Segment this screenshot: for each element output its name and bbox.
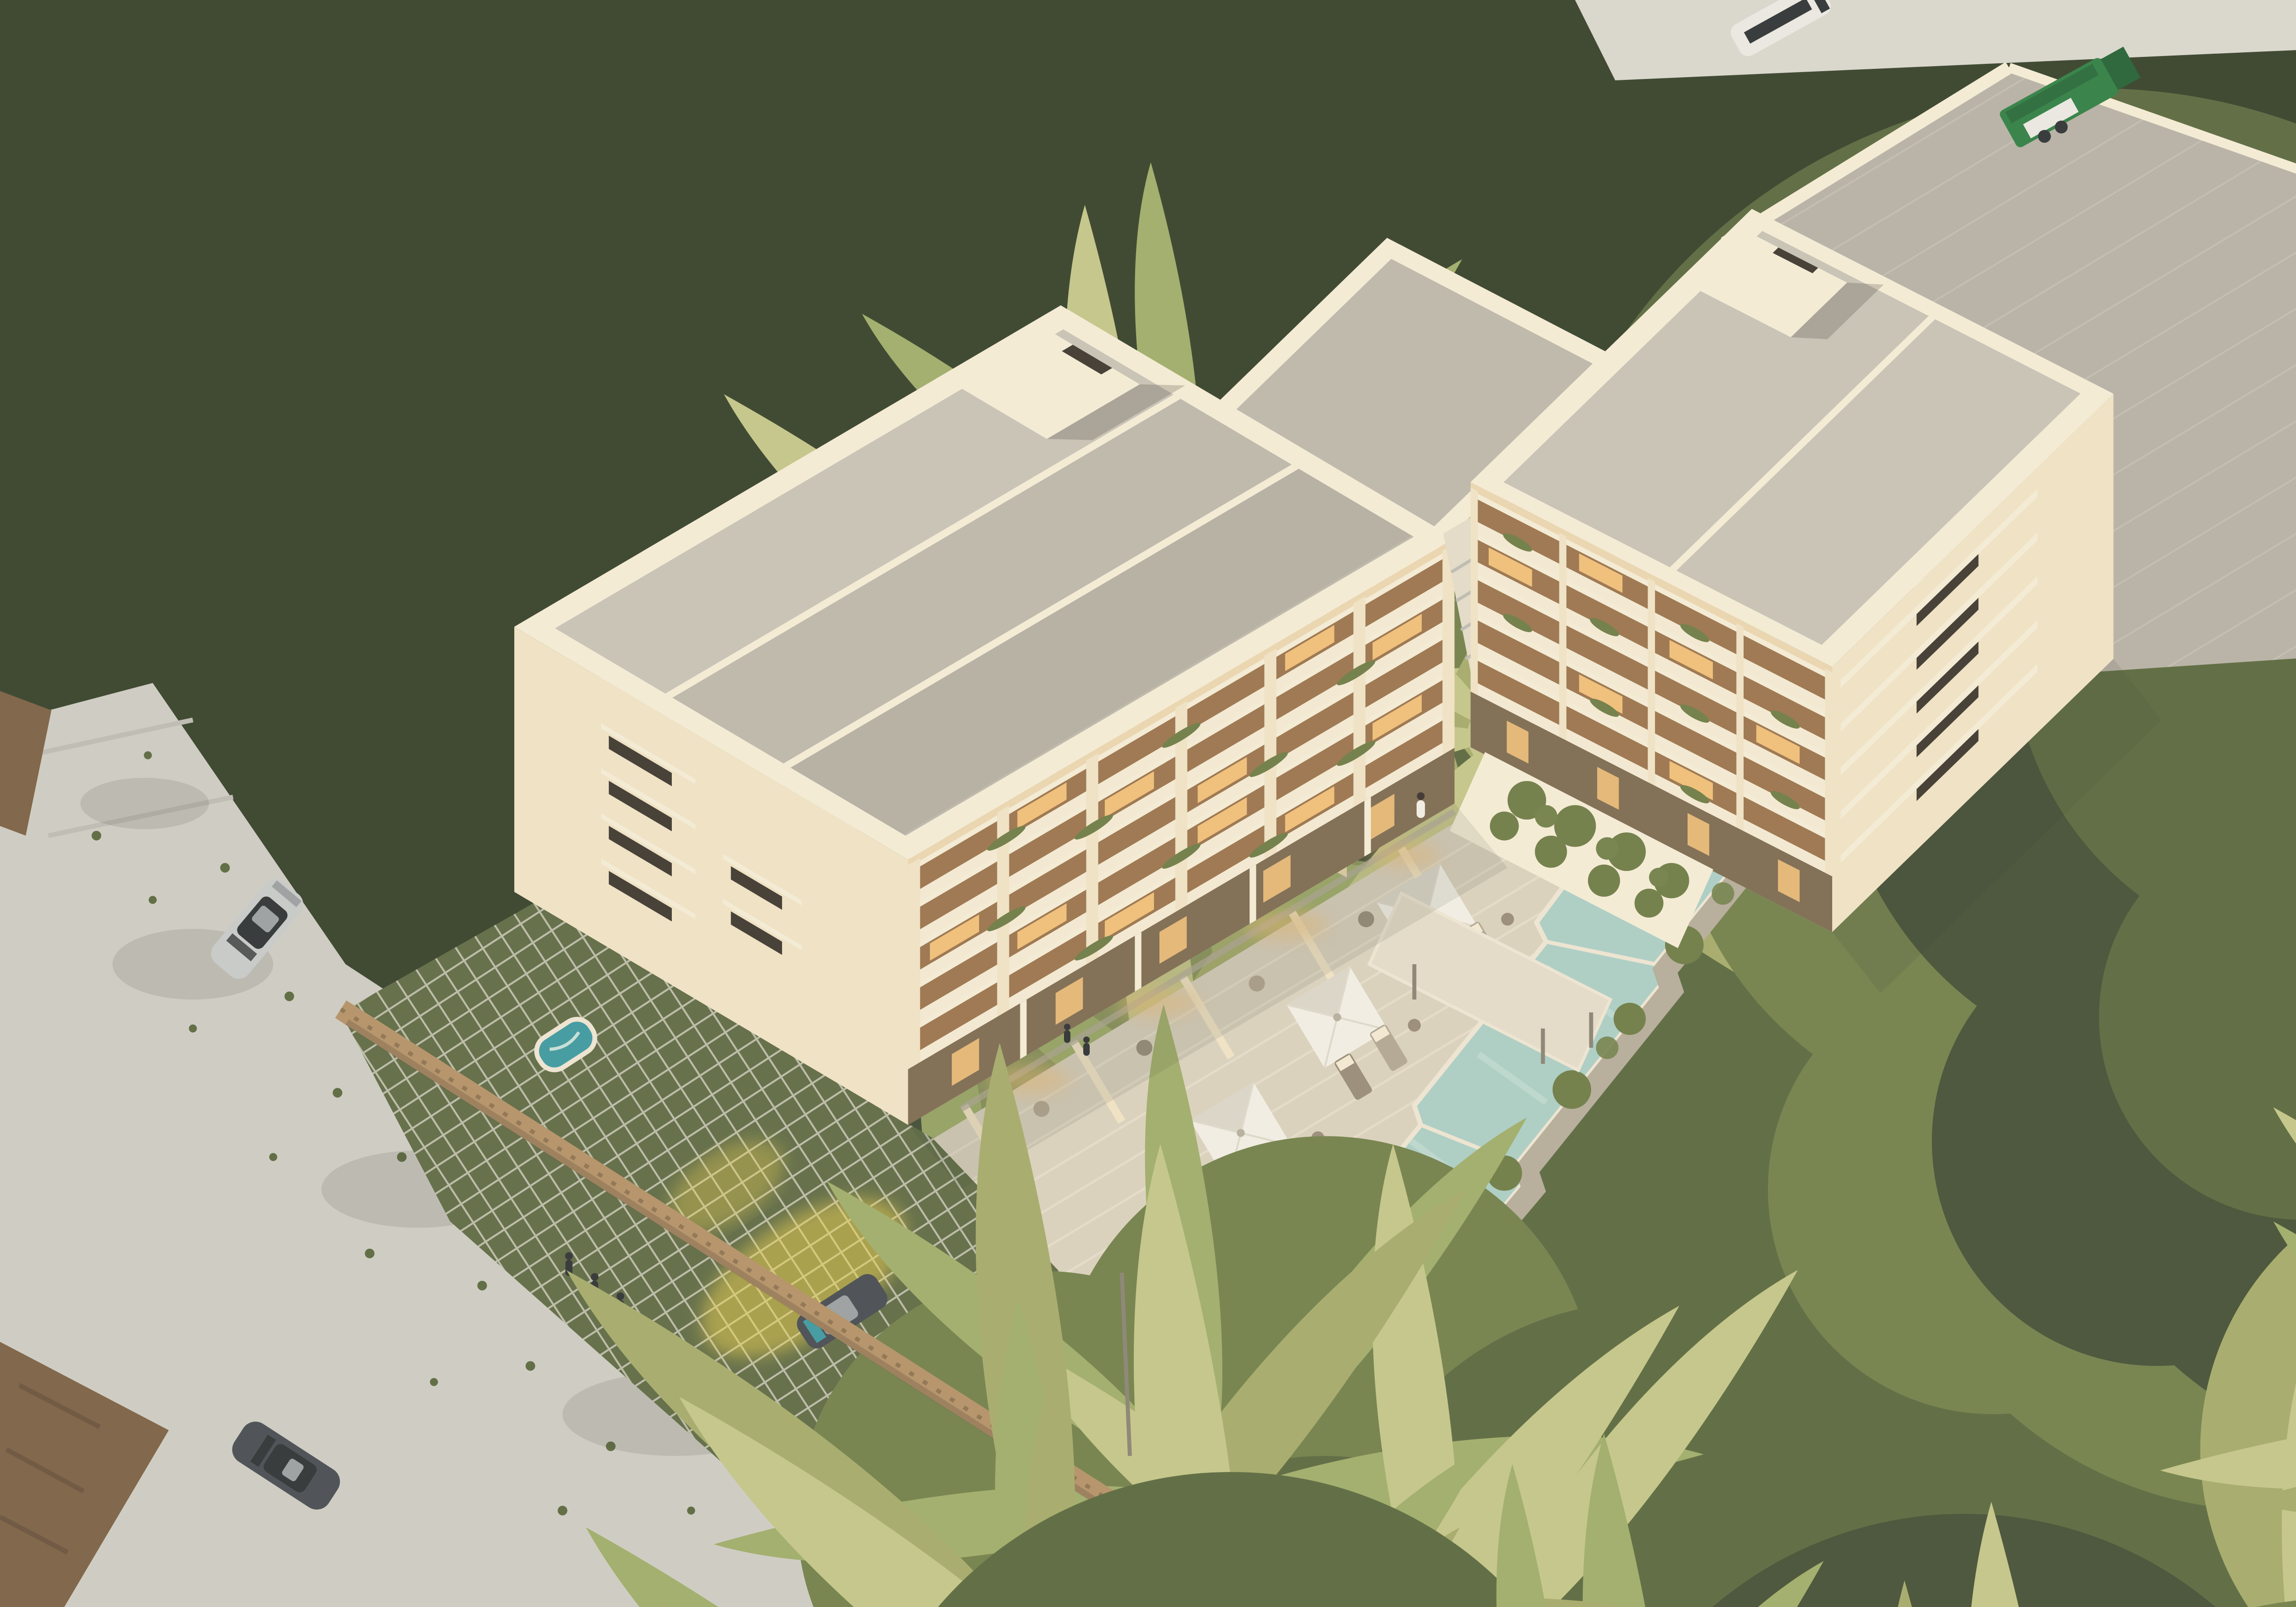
aerial-render-scene xyxy=(0,0,2296,1607)
dusk-light-overlay xyxy=(0,0,2296,1607)
scene-canvas xyxy=(0,0,2296,1607)
